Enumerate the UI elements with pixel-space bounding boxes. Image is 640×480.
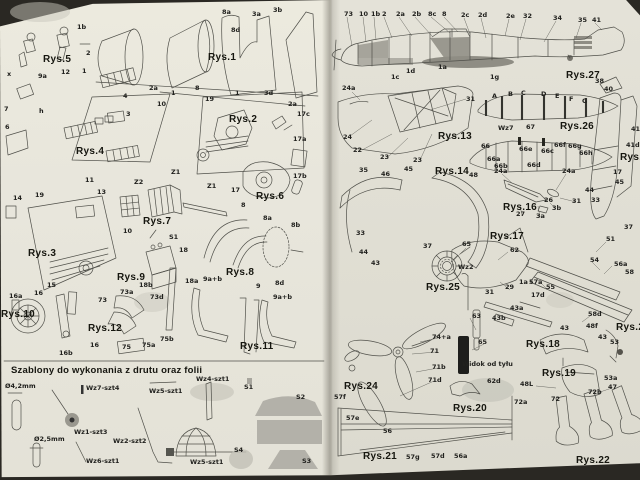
part-number-label: 9: [256, 283, 261, 290]
figure-label: Rys.11: [240, 342, 274, 352]
template-label: S3: [302, 458, 311, 465]
part-number-label: 3a: [536, 213, 545, 220]
part-number-label: Wz7: [498, 125, 513, 132]
part-number-label: 57d: [431, 453, 445, 460]
part-number-label: F: [569, 96, 573, 103]
part-number-label: 8a: [222, 9, 231, 16]
part-number-label: 23: [380, 154, 389, 161]
part-number-label: 18: [179, 247, 188, 254]
part-number-label: 57e: [346, 415, 359, 422]
part-number-label: 74+a: [432, 334, 451, 341]
part-number-label: 3a: [252, 11, 261, 18]
part-number-label: 41: [631, 126, 640, 133]
part-number-label: 3b: [552, 205, 561, 212]
part-number-label: 24a: [494, 168, 507, 175]
part-number-label: 57f: [334, 394, 346, 401]
part-number-label: A: [492, 93, 497, 100]
part-number-label: 58: [625, 269, 634, 276]
part-number-label: Z1: [207, 183, 216, 190]
template-label: Wz5-szt1: [149, 388, 182, 395]
figure-label: Rys.25: [426, 283, 460, 293]
figure-label: Rys.17: [490, 232, 524, 242]
figure-label: Rys.23: [616, 323, 640, 333]
part-number-label: 73: [344, 11, 353, 18]
figure-label: Rys.15: [620, 153, 640, 163]
part-number-label: 3d: [264, 90, 273, 97]
part-number-label: 45: [404, 166, 413, 173]
part-number-label: 26: [544, 197, 553, 204]
part-number-label: 1b: [371, 11, 380, 18]
part-number-label: G: [582, 98, 587, 105]
part-number-label: 9a+b: [273, 294, 292, 301]
part-number-label: h: [39, 108, 44, 115]
part-number-label: 66: [481, 143, 490, 150]
template-label: Wz7-szt4: [86, 385, 119, 392]
part-number-label: 29: [505, 284, 514, 291]
template-label: Wz2-szt2: [113, 438, 146, 445]
part-number-label: 8: [195, 85, 200, 92]
part-number-label: 16a: [9, 293, 22, 300]
part-number-label: 8: [442, 11, 447, 18]
part-number-label: 8d: [231, 27, 240, 34]
part-number-label: 65: [462, 241, 471, 248]
figure-label: Rys.14: [435, 167, 469, 177]
figure-label: Rys.21: [363, 452, 397, 462]
part-number-label: 35: [578, 17, 587, 24]
part-number-label: 71b: [432, 364, 446, 371]
template-label: Wz4-szt1: [196, 376, 229, 383]
part-number-label: 48L: [520, 381, 533, 388]
part-number-label: 72: [551, 396, 560, 403]
part-number-label: 1a: [438, 64, 447, 71]
figure-label: Rys.2: [229, 115, 257, 125]
part-number-label: 73a: [120, 289, 133, 296]
part-number-label: 73d: [150, 294, 164, 301]
part-number-label: S1: [169, 234, 178, 241]
note-label: Widok od tyłu: [462, 361, 513, 368]
part-number-label: C: [521, 90, 526, 97]
template-label: S1: [244, 384, 253, 391]
part-number-label: 1b: [77, 24, 86, 31]
part-number-label: 9a+b: [203, 276, 222, 283]
part-number-label: 27: [516, 211, 525, 218]
part-number-label: 55: [546, 284, 555, 291]
figure-label: Rys.20: [453, 404, 487, 414]
part-number-label: 71: [430, 348, 439, 355]
part-number-label: 11: [85, 177, 94, 184]
part-number-label: 31: [466, 96, 475, 103]
part-number-label: 8d: [275, 280, 284, 287]
part-number-label: 4: [123, 93, 128, 100]
part-number-label: 66c: [541, 148, 554, 155]
part-number-label: 63: [472, 313, 481, 320]
figure-label: Rys.18: [526, 340, 560, 350]
figure-label: Rys.7: [143, 217, 171, 227]
part-number-label: 3: [126, 111, 131, 118]
part-number-label: 56a: [614, 261, 627, 268]
part-number-label: 33: [356, 230, 365, 237]
part-number-label: 8b: [291, 222, 300, 229]
part-number-label: 31: [572, 198, 581, 205]
part-number-label: 41: [592, 17, 601, 24]
part-number-label: 40: [604, 86, 613, 93]
part-number-label: 8a: [263, 215, 272, 222]
part-number-label: 17: [231, 187, 240, 194]
part-number-label: 1g: [490, 74, 499, 81]
part-number-label: Z2: [134, 179, 143, 186]
part-number-label: 9a: [38, 73, 47, 80]
part-number-label: 24: [343, 134, 352, 141]
part-number-label: 47: [608, 384, 617, 391]
template-label: Wz1-szt3: [74, 429, 107, 436]
figure-label: Rys.13: [438, 132, 472, 142]
part-number-label: 18a: [185, 278, 198, 285]
part-number-label: 43: [598, 334, 607, 341]
part-number-label: x: [7, 71, 11, 78]
part-number-label: 43a: [510, 305, 523, 312]
part-number-label: 56: [383, 428, 392, 435]
part-number-label: 2a: [396, 11, 405, 18]
part-number-label: 2: [86, 50, 91, 57]
part-number-label: Z1: [171, 169, 180, 176]
part-number-label: 35: [359, 167, 368, 174]
part-number-label: 54: [590, 257, 599, 264]
part-number-label: 62: [510, 247, 519, 254]
left-page: [0, 0, 331, 480]
part-number-label: 43b: [492, 315, 506, 322]
part-number-label: 14: [13, 195, 22, 202]
part-number-label: 67: [526, 124, 535, 131]
template-label: Wz5-szt1: [190, 459, 223, 466]
part-number-label: 51: [606, 236, 615, 243]
part-number-label: 53: [610, 339, 619, 346]
part-number-label: 10: [359, 11, 368, 18]
part-number-label: E: [555, 93, 559, 100]
part-number-label: 16: [90, 342, 99, 349]
part-number-label: 8c: [428, 11, 436, 18]
templates-section-heading: Szablony do wykonania z drutu oraz folii: [11, 365, 202, 376]
part-number-label: 43: [560, 325, 569, 332]
scanned-spread: Rys.5Rys.1Rys.2Rys.4Rys.6Rys.7Rys.3Rys.9…: [0, 0, 640, 480]
part-number-label: 72b: [588, 389, 602, 396]
part-number-label: 37: [624, 224, 633, 231]
part-number-label: 17c: [297, 111, 310, 118]
part-number-label: D: [541, 91, 546, 98]
part-number-label: 2: [382, 11, 387, 18]
part-number-label: 72a: [514, 399, 527, 406]
part-number-label: 38: [595, 78, 604, 85]
part-number-label: 46: [381, 171, 390, 178]
part-number-label: 1d: [406, 68, 415, 75]
part-number-label: 8: [241, 202, 246, 209]
part-number-label: 12: [61, 69, 70, 76]
part-number-label: 2e: [506, 13, 515, 20]
part-number-label: 73: [98, 297, 107, 304]
figure-label: Rys.4: [76, 147, 104, 157]
figure-label: Rys.10: [1, 310, 35, 320]
part-number-label: 2a: [149, 85, 158, 92]
part-number-label: 10: [123, 228, 132, 235]
part-number-label: 19: [35, 192, 44, 199]
part-number-label: Wz2: [458, 264, 473, 271]
template-label: Ø4,2mm: [5, 383, 36, 390]
part-number-label: 43: [371, 260, 380, 267]
part-number-label: B: [508, 91, 513, 98]
part-number-label: 32: [523, 13, 532, 20]
part-number-label: 33: [591, 197, 600, 204]
part-number-label: 48: [469, 172, 478, 179]
template-label: Wz6-szt1: [86, 458, 119, 465]
part-number-label: 2c: [461, 12, 469, 19]
part-number-label: 65: [478, 339, 487, 346]
part-number-label: 62d: [487, 378, 501, 385]
part-number-label: 1c: [391, 74, 399, 81]
part-number-label: 16: [34, 290, 43, 297]
part-number-label: 2d: [478, 12, 487, 19]
part-number-label: 1: [171, 90, 176, 97]
part-number-label: 66d: [527, 162, 541, 169]
part-number-label: 58d: [588, 311, 602, 318]
part-number-label: 44: [359, 249, 368, 256]
part-number-label: 13: [97, 189, 106, 196]
part-number-label: 71d: [428, 377, 442, 384]
part-number-label: 31: [485, 289, 494, 296]
part-number-label: 7: [4, 106, 9, 113]
part-number-label: 22: [353, 147, 362, 154]
figure-label: Rys.6: [256, 192, 284, 202]
part-number-label: 19: [205, 96, 214, 103]
template-label: S2: [296, 394, 305, 401]
part-number-label: 10: [157, 101, 166, 108]
part-number-label: 57g: [406, 454, 420, 461]
part-number-label: 1: [235, 90, 240, 97]
part-number-label: 24a: [562, 168, 575, 175]
part-number-label: 2a: [288, 101, 297, 108]
template-label: Ø2,5mm: [34, 436, 65, 443]
part-number-label: 66e: [519, 146, 532, 153]
figure-label: Rys.3: [28, 249, 56, 259]
part-number-label: 57a: [529, 279, 542, 286]
part-number-label: 45: [615, 179, 624, 186]
part-number-label: 15: [47, 282, 56, 289]
part-number-label: 75: [122, 344, 131, 351]
figure-label: Rys.1: [208, 53, 236, 63]
template-label: S4: [234, 447, 243, 454]
figure-label: Rys.12: [88, 324, 122, 334]
part-number-label: 17: [613, 169, 622, 176]
part-number-label: 18b: [139, 282, 153, 289]
part-number-label: 41d: [626, 142, 640, 149]
part-number-label: 17b: [293, 173, 307, 180]
part-number-label: 66f: [554, 142, 566, 149]
part-number-label: 23: [413, 157, 422, 164]
page-fold-seam: [322, 0, 340, 476]
part-number-label: 1a: [519, 279, 528, 286]
part-number-label: 53a: [604, 375, 617, 382]
part-number-label: 1: [82, 68, 87, 75]
part-number-label: 56a: [454, 453, 467, 460]
figure-label: Rys.8: [226, 268, 254, 278]
figure-label: Rys.24: [344, 382, 378, 392]
part-number-label: 34: [553, 15, 562, 22]
figure-label: Rys.19: [542, 369, 576, 379]
part-number-label: 48f: [586, 323, 598, 330]
part-number-label: 16b: [59, 350, 73, 357]
part-number-label: 75a: [142, 342, 155, 349]
part-number-label: 3b: [273, 7, 282, 14]
figure-label: Rys.26: [560, 122, 594, 132]
part-number-label: 17a: [293, 136, 306, 143]
part-number-label: 6: [5, 124, 10, 131]
part-number-label: 44: [585, 187, 594, 194]
figure-label: Rys.5: [43, 55, 71, 65]
part-number-label: 24a: [342, 85, 355, 92]
part-number-label: 66h: [579, 150, 593, 157]
part-number-label: 17d: [531, 292, 545, 299]
part-number-label: 2b: [412, 11, 421, 18]
part-number-label: 75b: [160, 336, 174, 343]
figure-label: Rys.22: [576, 456, 610, 466]
part-number-label: 37: [423, 243, 432, 250]
